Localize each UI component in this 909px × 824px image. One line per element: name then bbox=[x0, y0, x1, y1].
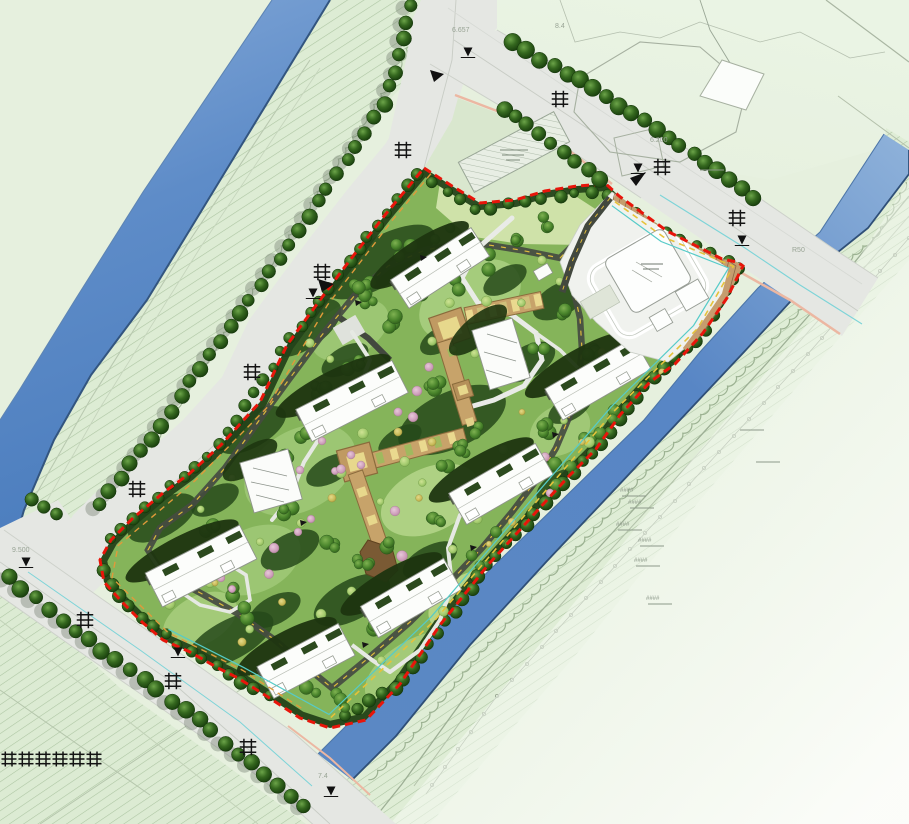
svg-text:####: #### bbox=[620, 488, 634, 494]
svg-text:####: #### bbox=[646, 596, 660, 602]
svg-text:####: #### bbox=[616, 522, 630, 528]
svg-text:R50: R50 bbox=[792, 247, 805, 254]
svg-text:6.200: 6.200 bbox=[650, 137, 668, 144]
svg-text:9.500: 9.500 bbox=[12, 547, 30, 554]
svg-text:####: #### bbox=[634, 558, 648, 564]
svg-text:####: #### bbox=[638, 538, 652, 544]
svg-text:8.4: 8.4 bbox=[555, 23, 565, 30]
svg-text:6.657: 6.657 bbox=[452, 27, 470, 34]
svg-text:7.4: 7.4 bbox=[318, 773, 328, 780]
svg-text:####: #### bbox=[628, 500, 642, 506]
